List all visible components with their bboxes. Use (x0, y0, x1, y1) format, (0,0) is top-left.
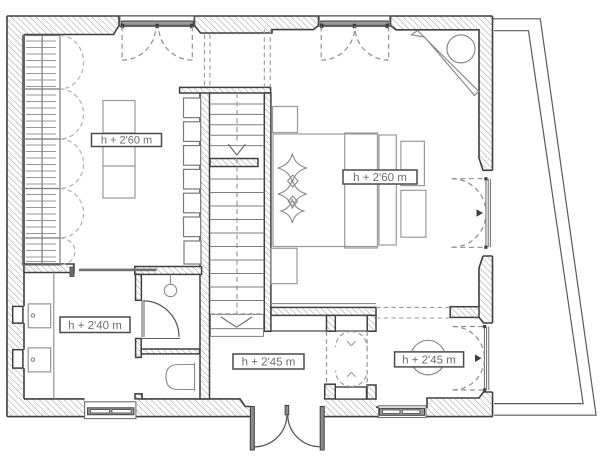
svg-text:h + 2'40 m: h + 2'40 m (68, 320, 122, 332)
svg-text:h + 2'45 m: h + 2'45 m (242, 357, 296, 369)
svg-text:h + 2'60 m: h + 2'60 m (353, 172, 407, 184)
svg-text:h + 2'60 m: h + 2'60 m (101, 135, 152, 147)
svg-text:h + 2'45 m: h + 2'45 m (402, 355, 456, 367)
